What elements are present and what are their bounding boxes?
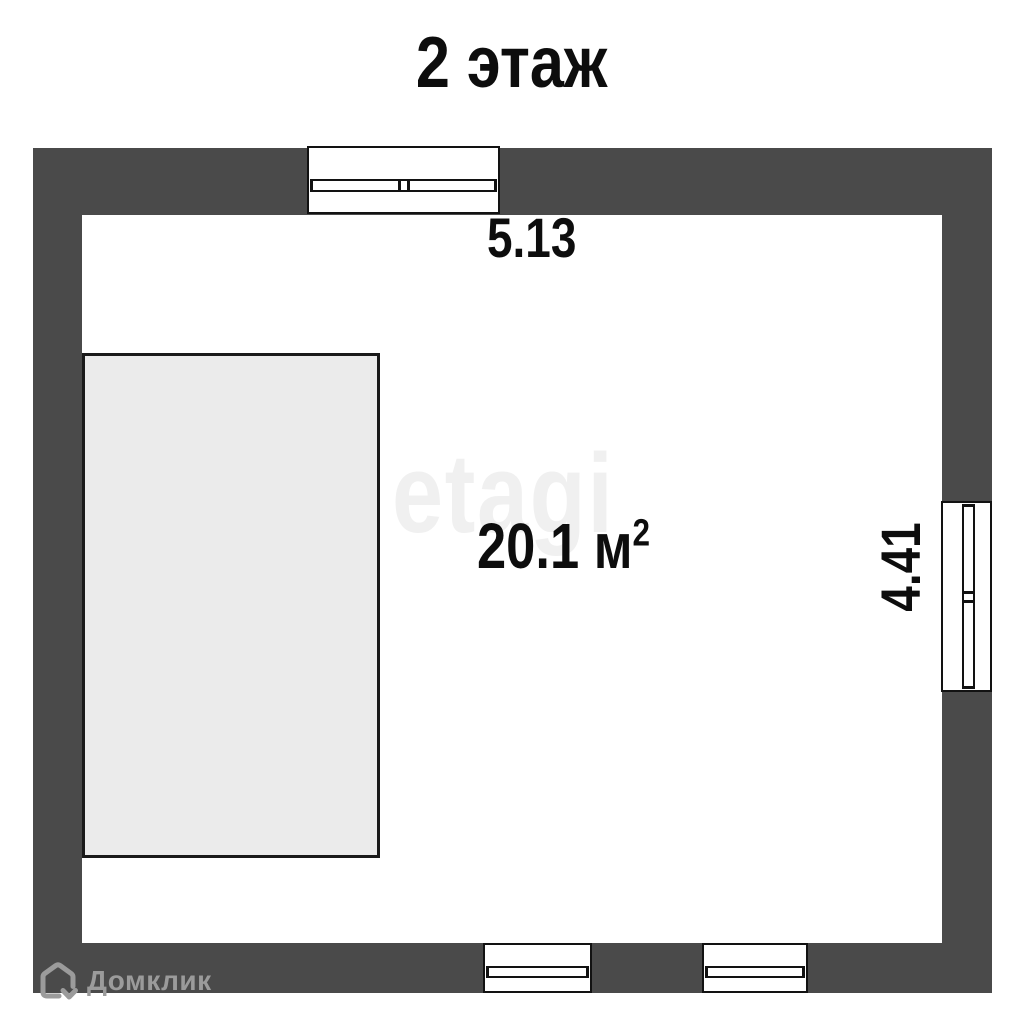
window-bottom-right-glass [705, 966, 805, 978]
window-bottom-left [483, 943, 592, 993]
window-tick [310, 181, 313, 190]
annex-area [82, 353, 380, 858]
window-tick [802, 968, 805, 976]
window-right [941, 501, 992, 692]
window-tick [964, 504, 973, 507]
window-top [307, 146, 500, 214]
domclick-logo: Домклик [38, 960, 212, 1002]
room-area-exponent: 2 [633, 512, 651, 555]
window-tick [486, 968, 489, 976]
window-bottom-right [702, 943, 808, 993]
dimension-width-value: 5.13 [487, 210, 576, 266]
floor-title: 2 этаж [0, 27, 1024, 99]
floor-title-text: 2 этаж [416, 27, 607, 99]
window-tick [964, 600, 973, 603]
room-area-value: 20.1 м [477, 510, 633, 582]
window-tick [398, 181, 401, 190]
window-tick [964, 686, 973, 689]
window-tick [964, 591, 973, 594]
dimension-width-label: 5.13 [487, 210, 596, 266]
domclick-house-icon [38, 960, 78, 1002]
floor-plan-page: 2 этаж etagi [0, 0, 1024, 1024]
room-area-label: 20.1 м2 [477, 514, 688, 578]
window-tick [494, 181, 497, 190]
dimension-height-value: 4.41 [869, 522, 932, 611]
window-tick [705, 968, 708, 976]
window-tick [586, 968, 589, 976]
window-tick [407, 181, 410, 190]
window-top-glass [310, 179, 497, 192]
window-right-glass [962, 504, 975, 689]
window-bottom-left-glass [486, 966, 589, 978]
room-area-text: 20.1 м2 [477, 514, 650, 578]
domclick-logo-text: Домклик [87, 967, 212, 995]
dimension-height-label: 4.41 [873, 522, 929, 611]
